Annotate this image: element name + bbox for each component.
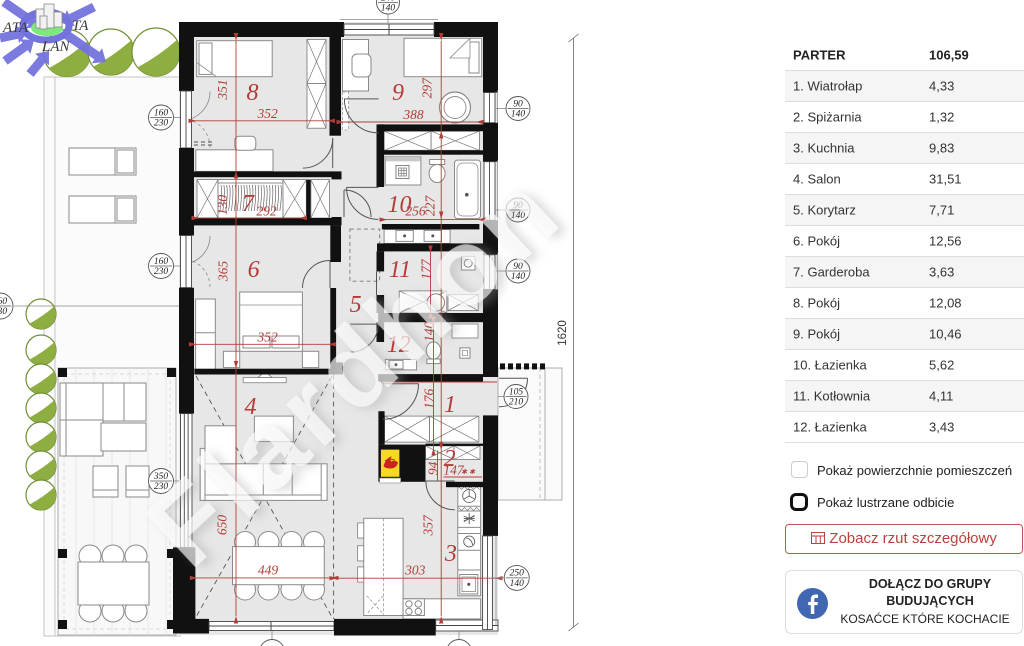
svg-text:90: 90 bbox=[513, 99, 523, 109]
svg-text:1: 1 bbox=[444, 392, 456, 418]
svg-text:230: 230 bbox=[154, 267, 169, 277]
svg-text:7: 7 bbox=[242, 191, 255, 217]
svg-text:8: 8 bbox=[247, 80, 259, 106]
svg-text:6: 6 bbox=[248, 257, 260, 283]
svg-text:1620: 1620 bbox=[557, 320, 569, 346]
svg-text:449: 449 bbox=[258, 563, 279, 578]
svg-text:230: 230 bbox=[154, 119, 169, 129]
svg-text:9: 9 bbox=[392, 80, 404, 106]
svg-text:357: 357 bbox=[420, 514, 435, 537]
svg-text:94: 94 bbox=[426, 461, 441, 475]
svg-text:388: 388 bbox=[402, 107, 424, 122]
svg-text:160: 160 bbox=[154, 257, 169, 267]
svg-text:351: 351 bbox=[215, 79, 230, 100]
svg-text:140: 140 bbox=[511, 110, 526, 120]
svg-text:352: 352 bbox=[256, 106, 278, 121]
svg-text:105: 105 bbox=[509, 387, 524, 397]
svg-text:176: 176 bbox=[421, 389, 436, 410]
svg-text:140: 140 bbox=[381, 4, 396, 14]
svg-text:TA: TA bbox=[72, 18, 89, 34]
svg-text:130: 130 bbox=[215, 195, 230, 216]
svg-text:ATA: ATA bbox=[2, 20, 29, 36]
svg-text:230: 230 bbox=[0, 307, 7, 317]
svg-text:160: 160 bbox=[0, 297, 7, 307]
svg-text:LAN: LAN bbox=[41, 39, 71, 55]
svg-text:365: 365 bbox=[216, 261, 231, 283]
svg-text:303: 303 bbox=[404, 563, 426, 578]
svg-text:210: 210 bbox=[509, 398, 524, 408]
svg-text:160: 160 bbox=[154, 108, 169, 118]
svg-text:297: 297 bbox=[420, 77, 435, 99]
svg-text:250: 250 bbox=[510, 569, 525, 579]
svg-text:3: 3 bbox=[444, 541, 457, 567]
svg-text:292: 292 bbox=[256, 204, 277, 219]
svg-text:352: 352 bbox=[256, 330, 278, 345]
svg-text:140: 140 bbox=[510, 579, 525, 589]
